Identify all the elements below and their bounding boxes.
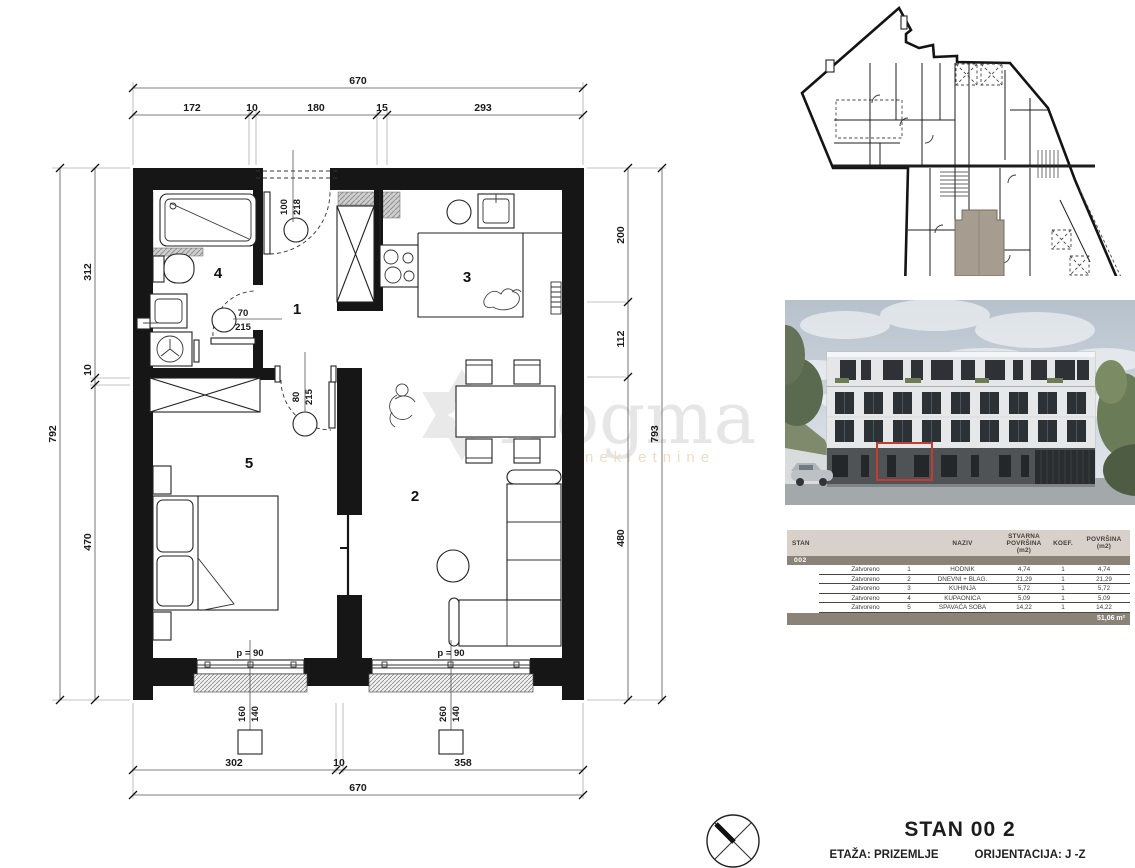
table-row: Zatvoreno 1 HODNIK 4,74 1 4,74 xyxy=(787,565,1130,575)
watermark-tagline: nekretnine xyxy=(585,449,715,466)
bed xyxy=(153,496,278,610)
toilet xyxy=(153,254,194,283)
building xyxy=(827,352,1095,487)
bathroom-door-width: 70 xyxy=(238,308,249,319)
bedroom-door: 80 215 xyxy=(275,352,336,436)
nightstand xyxy=(153,612,171,640)
room-label-4: 4 xyxy=(214,265,223,282)
dim-right-total: 793 xyxy=(649,425,661,443)
window-dim: 160 xyxy=(237,706,248,722)
dim-right-seg: 480 xyxy=(615,529,627,547)
window-living: p = 90 260 140 xyxy=(369,640,533,754)
dim-right-seg: 112 xyxy=(615,330,627,347)
table-header: STAN NAZIV STVARNA POVRŠINA (m2) KOEF. P… xyxy=(787,530,1130,556)
dim-top-seg: 10 xyxy=(246,102,258,114)
dim-top-seg: 172 xyxy=(183,102,201,114)
bathroom-door-height: 215 xyxy=(235,322,252,333)
window-dim: 140 xyxy=(451,706,462,722)
page-subtitle: ETAŽA: PRIZEMLJE ORIJENTACIJA: J -Z xyxy=(785,849,1130,861)
room-label-1: 1 xyxy=(293,301,301,318)
area-table: STAN NAZIV STVARNA POVRŠINA (m2) KOEF. P… xyxy=(787,530,1130,625)
cat-figure xyxy=(484,289,521,310)
table-row: Zatvoreno 5 SPAVAĆA SOBA 14,22 1 14,22 xyxy=(787,603,1130,613)
entry-door-height: 218 xyxy=(292,199,303,215)
bedroom-door-height: 215 xyxy=(304,388,315,405)
orientation-label: ORIJENTACIJA: J -Z xyxy=(975,849,1086,861)
room-label-2: 2 xyxy=(411,488,419,505)
dim-left-seg: 312 xyxy=(82,263,94,281)
window-parapet-label: p = 90 xyxy=(236,648,263,659)
stove xyxy=(380,245,418,287)
bedroom-door-width: 80 xyxy=(291,392,302,403)
entry-door: 100 218 xyxy=(256,150,338,254)
header-povrsina: POVRŠINA (m2) xyxy=(1078,536,1130,550)
header-koef: KOEF. xyxy=(1048,540,1078,547)
bathroom-door: 70 215 xyxy=(211,291,282,344)
hall-closet xyxy=(337,206,374,302)
dim-top-seg: 15 xyxy=(376,102,388,114)
unit-id-band: 002 xyxy=(787,556,1130,565)
dim-right-seg: 200 xyxy=(615,226,627,244)
person-figure xyxy=(390,384,415,427)
header-naziv: NAZIV xyxy=(925,540,1000,547)
table-total: 51,06 m² xyxy=(787,613,1130,625)
window-dim: 260 xyxy=(438,706,449,722)
washing-machine xyxy=(150,332,199,366)
table-row: Zatvoreno 4 KUPAONICA 5,09 1 5,09 xyxy=(787,594,1130,604)
dim-left-seg: 470 xyxy=(82,533,94,551)
dim-bottom-seg: 302 xyxy=(225,757,243,769)
room-label-5: 5 xyxy=(245,455,253,472)
wardrobe xyxy=(150,378,260,412)
page-title: STAN 00 2 xyxy=(820,818,1100,842)
dim-bottom-seg: 10 xyxy=(333,757,345,769)
dim-left-total: 792 xyxy=(47,425,59,443)
nightstand xyxy=(153,466,171,494)
facade-render xyxy=(765,299,1135,505)
highlighted-unit xyxy=(955,210,1004,276)
dim-left-seg: 10 xyxy=(82,364,94,376)
radiator xyxy=(551,282,561,314)
table-row: Zatvoreno 2 DNEVNI + BLAG. 21,29 1 21,29 xyxy=(787,575,1130,585)
sliding-door xyxy=(340,512,348,598)
table-row: Zatvoreno 3 KUHINJA 5,72 1 5,72 xyxy=(787,584,1130,594)
header-stan: STAN xyxy=(787,540,838,547)
dim-bottom-seg: 358 xyxy=(454,757,472,769)
garage-door xyxy=(1035,450,1095,484)
floor-plan: Dogma nekretnine xyxy=(47,75,756,799)
compass-icon xyxy=(707,815,759,867)
bathtub xyxy=(160,194,256,246)
dim-top-seg: 180 xyxy=(307,102,325,114)
window-bedroom: p = 90 160 140 xyxy=(194,640,307,754)
drawing-sheet: Dogma nekretnine xyxy=(0,0,1135,868)
room-label-3: 3 xyxy=(463,269,471,286)
entry-door-width: 100 xyxy=(279,199,290,215)
header-stvarna: STVARNA POVRŠINA (m2) xyxy=(1000,533,1048,554)
dim-top-seg: 293 xyxy=(474,102,492,114)
coffee-table xyxy=(437,550,469,582)
dim-bottom-total: 670 xyxy=(349,782,367,794)
window-dim: 140 xyxy=(250,706,261,722)
dim-top-total: 670 xyxy=(349,75,367,87)
floor-label: ETAŽA: PRIZEMLJE xyxy=(829,849,938,861)
key-plan xyxy=(802,8,1128,292)
window-parapet-label: p = 90 xyxy=(437,648,464,659)
